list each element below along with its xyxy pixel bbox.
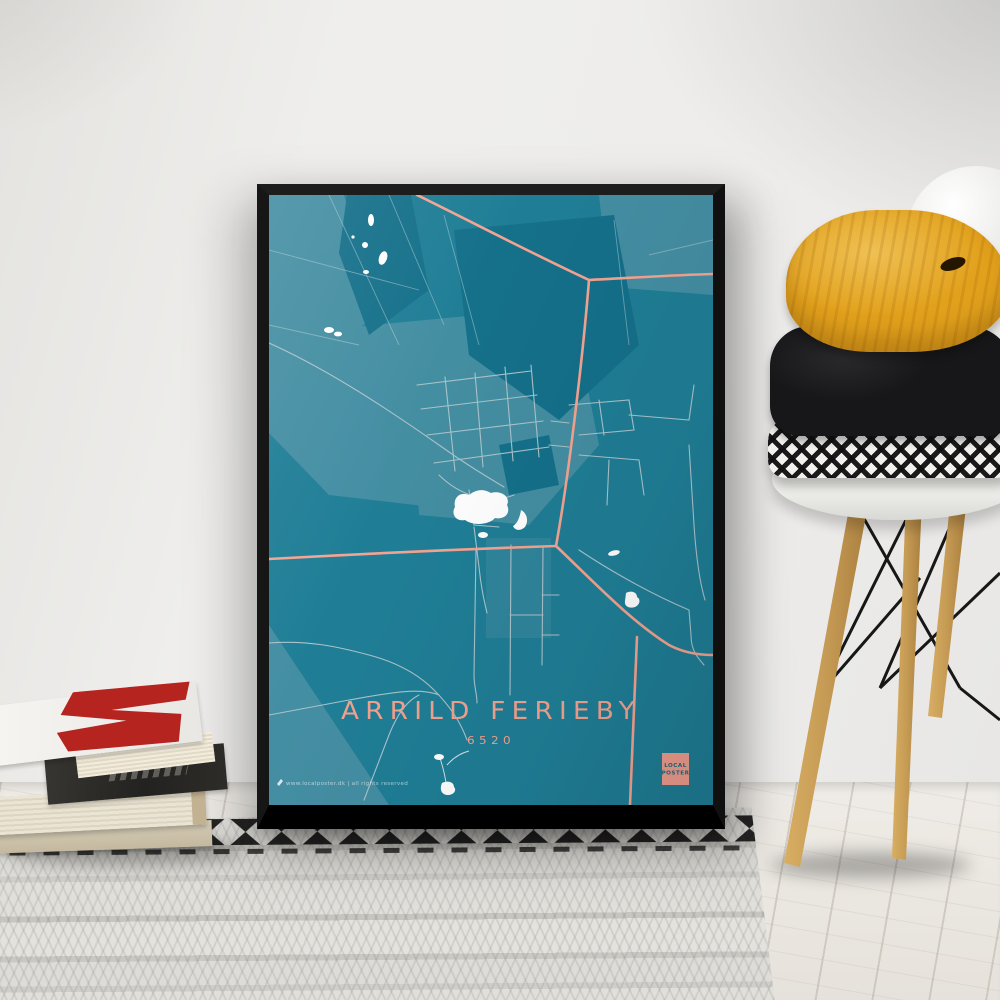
sweater-yellow xyxy=(786,210,1000,352)
logo-line1: LOCAL xyxy=(664,763,687,769)
localposter-logo: LOCAL POSTER xyxy=(662,753,690,785)
room-scene: ARRILD FERIEBY 6520 www.localposter.dk |… xyxy=(0,0,1000,1000)
poster-footer-url: www.localposter.dk | all rights reserved xyxy=(286,781,408,787)
stool-legs xyxy=(760,458,1000,878)
poster-frame: ARRILD FERIEBY 6520 www.localposter.dk |… xyxy=(257,184,725,829)
logo-line2: POSTER xyxy=(662,771,690,777)
poster-title: ARRILD FERIEBY xyxy=(341,696,641,725)
map-poster: ARRILD FERIEBY 6520 www.localposter.dk |… xyxy=(269,195,713,805)
sweater-fold-shadow xyxy=(939,254,967,273)
poster-postal-code: 6520 xyxy=(467,734,515,747)
